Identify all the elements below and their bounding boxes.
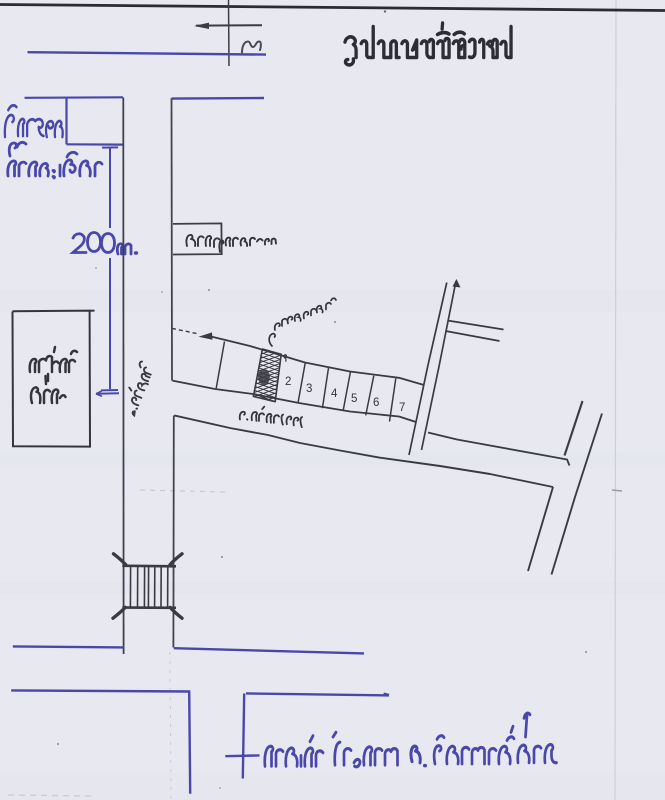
svg-text:5: 5 — [351, 393, 357, 405]
svg-text:6: 6 — [373, 397, 379, 409]
svg-text:7: 7 — [399, 402, 405, 414]
svg-text:4: 4 — [331, 388, 338, 400]
svg-text:3: 3 — [306, 383, 312, 395]
svg-text:2: 2 — [285, 376, 291, 388]
